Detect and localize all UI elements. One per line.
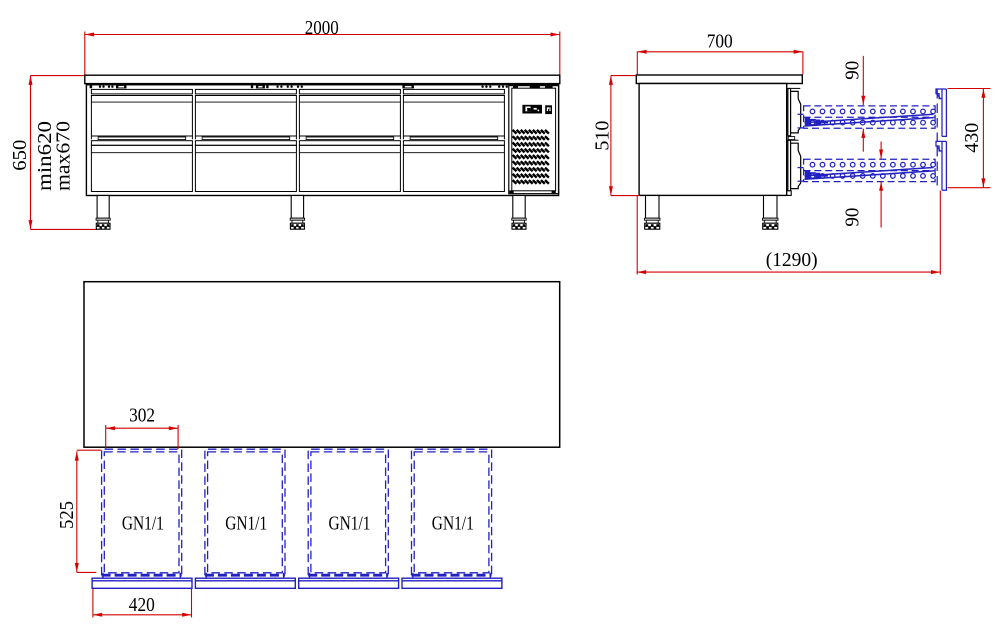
svg-text:GN1/1: GN1/1: [122, 512, 164, 534]
svg-text:90: 90: [841, 61, 863, 80]
svg-text:430: 430: [961, 123, 983, 153]
svg-text:GN1/1: GN1/1: [329, 512, 371, 534]
svg-text:525: 525: [56, 501, 78, 529]
svg-text:(1290): (1290): [766, 249, 818, 271]
svg-text:700: 700: [707, 31, 733, 53]
svg-text:GN1/1: GN1/1: [225, 512, 267, 534]
svg-text:510: 510: [591, 121, 613, 151]
svg-text:GN1/1: GN1/1: [432, 512, 474, 534]
svg-text:2000: 2000: [305, 17, 339, 39]
svg-text:max670: max670: [53, 121, 75, 191]
svg-text:650: 650: [9, 140, 31, 171]
svg-text:90: 90: [841, 208, 863, 227]
svg-text:420: 420: [129, 594, 155, 616]
svg-text:302: 302: [129, 405, 155, 427]
